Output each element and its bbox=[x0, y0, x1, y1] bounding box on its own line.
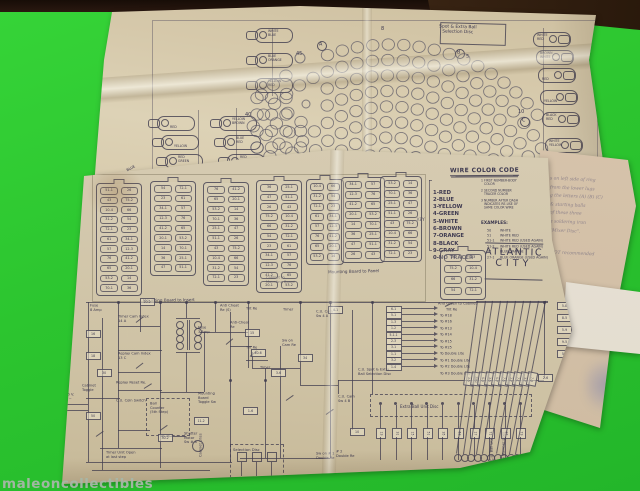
seller-watermark: maleoncollectibles bbox=[2, 476, 153, 491]
schematic-wire bbox=[442, 405, 443, 428]
ladder-source-code: 1-3 bbox=[392, 321, 397, 324]
component-label-text: Timer Cam Index 14 A bbox=[118, 315, 149, 323]
component-label-text: Anti-Cheat Re bbox=[230, 321, 249, 329]
terminal-pill: 75-2 bbox=[444, 265, 462, 273]
wire-tag-code: 15 bbox=[250, 331, 254, 335]
schematic-wire bbox=[544, 302, 545, 378]
component-label-text: Timer bbox=[283, 308, 293, 312]
power-plug-icon bbox=[48, 398, 57, 416]
component-label: Ball Counter (5th Step) bbox=[150, 402, 190, 430]
component-label-text: Sw on Cam Re bbox=[282, 339, 296, 347]
wire-tag-code: 16 bbox=[91, 332, 95, 336]
wire-tag: 15 bbox=[245, 329, 260, 337]
component-label-text: Timer bbox=[260, 366, 270, 370]
terminal-pill: 10-4 bbox=[465, 265, 483, 273]
lower-sheet-wrap: WIRE COLOR CODE ATLANTIC CITY Mounting B… bbox=[0, 0, 640, 491]
schematic-wire bbox=[429, 250, 432, 251]
wire-tag-code: 30 bbox=[102, 371, 106, 375]
schematic-wire bbox=[402, 353, 434, 354]
terminal-pill: 26 bbox=[444, 254, 462, 262]
terminal-pill: 43 bbox=[465, 254, 483, 262]
wire-tag: 11-2 bbox=[194, 417, 209, 425]
wire-tag: 18 bbox=[86, 352, 101, 360]
wire-tag: 1-6 bbox=[243, 407, 258, 415]
wire-tag: 8-5 bbox=[557, 314, 572, 322]
component-label-text: Mounting Board Toggle Sw bbox=[198, 392, 216, 404]
schematic-wire bbox=[402, 346, 434, 347]
wire-code-note-text: 2 SECOND NUMBER TRACER COLOR bbox=[481, 189, 512, 196]
schematic-wire bbox=[402, 340, 434, 341]
junction-dot bbox=[185, 301, 188, 304]
component-label-text: Replay Cam Index 13 C bbox=[118, 352, 151, 360]
ladder-source-code: 5-1-1 bbox=[390, 333, 398, 336]
extra-ball-wire-code: 51 bbox=[426, 432, 429, 436]
wire-tag-code: 5-9 bbox=[562, 328, 567, 332]
schematic-wire bbox=[380, 405, 381, 428]
schematic-wire bbox=[88, 302, 89, 462]
schematic-wire bbox=[402, 366, 434, 367]
component-label: Fuse 3 Amp bbox=[198, 326, 224, 345]
component-label-text: Fuse 8 Amp bbox=[90, 304, 102, 312]
wire-tag-code: 18 bbox=[91, 354, 95, 358]
terminal-pill: 54 bbox=[444, 287, 462, 295]
component-label-text: Fuse 3 Amp bbox=[198, 326, 210, 334]
schematic-wire bbox=[402, 308, 434, 309]
wire-tag: 30-2 bbox=[158, 434, 173, 442]
junction-dot bbox=[117, 301, 120, 304]
wire-tag-code: 8-5 bbox=[562, 316, 567, 320]
component-label: 115 V. 60 ~ bbox=[63, 393, 88, 412]
component-label: Replay Cam Index 13 C bbox=[118, 352, 190, 371]
schematic-wire bbox=[396, 405, 397, 428]
wire-arrowhead bbox=[434, 364, 438, 368]
photo-of-schematic: Spot & Extra Ball Selection Disc Extra W… bbox=[0, 0, 640, 491]
component-label-text: C.U. Cam Sw 4 B bbox=[338, 395, 355, 403]
terminal-pill-code: 10-4 bbox=[469, 267, 477, 271]
schematic-wire bbox=[187, 320, 188, 350]
wire-tag: 40-6 bbox=[251, 349, 266, 357]
example-desc-text: BLUE ORANGE (USED AGAIN) bbox=[500, 256, 548, 260]
bundle-wire-code: 7-3 bbox=[530, 376, 534, 381]
ladder-source-tag: 1-4 bbox=[386, 364, 402, 371]
schematic-wire bbox=[402, 334, 434, 335]
junction-dot bbox=[229, 379, 232, 382]
wire-arrowhead bbox=[434, 344, 438, 348]
component-label-text: Cabinet Toggle bbox=[82, 384, 96, 392]
wiring-schematic-sheet: WIRE COLOR CODE ATLANTIC CITY Mounting B… bbox=[0, 0, 640, 491]
schematic-wire bbox=[189, 320, 190, 350]
component-label-text: Cabinet Lites bbox=[199, 433, 203, 457]
ladder-source-code: 5-1 bbox=[392, 314, 397, 317]
terminal-pill-code: 54 bbox=[451, 289, 455, 293]
component-label-text: 115 V. 60 ~ bbox=[63, 393, 74, 401]
wire-tag-code: 5-8 bbox=[562, 304, 567, 308]
schematic-wire bbox=[86, 302, 548, 303]
wire-arrowhead bbox=[434, 351, 438, 355]
wire-tag: 30 bbox=[97, 369, 112, 377]
ladder-source-code: 1-2 bbox=[392, 327, 397, 330]
extra-ball-wire-tag: 31 bbox=[392, 428, 402, 439]
wire-tag: 9-5 bbox=[557, 338, 572, 346]
junction-dot bbox=[214, 301, 217, 304]
schematic-wire bbox=[429, 180, 432, 181]
extra-ball-wire-code: 17 bbox=[473, 432, 476, 436]
wire-tag: 3-6 bbox=[271, 369, 286, 377]
component-label: Replay Reset Re. bbox=[116, 372, 183, 391]
component-label: C.U. Spot & Extra Ball Selection Disc bbox=[358, 368, 432, 387]
schematic-wire bbox=[402, 321, 434, 322]
schematic-wire bbox=[402, 327, 434, 328]
example-code-text: 27-1 bbox=[487, 256, 494, 260]
wire-tag: 5-8 bbox=[557, 302, 572, 310]
ladder-source-code: 1-1 bbox=[392, 353, 397, 356]
wire-tag-code: 30-2 bbox=[162, 436, 169, 440]
stain-top-left bbox=[80, 172, 150, 212]
wire-arrowhead bbox=[434, 306, 438, 310]
extra-ball-unit-caption-text: Extra Ball Unit Disc bbox=[400, 405, 438, 409]
wire-arrowhead bbox=[434, 357, 438, 361]
junction-dot bbox=[371, 301, 374, 304]
component-label-text: Anti Cheat Re (S) bbox=[220, 304, 239, 312]
component-label-text: Ball Counter (5th Step) bbox=[150, 402, 168, 414]
wire-code-note-text: 1 FIRST NUMBER-BODY COLOR bbox=[481, 179, 517, 186]
wire-tag-code: 1-6 bbox=[248, 409, 253, 413]
component-label: Tilt Re bbox=[246, 298, 271, 317]
schematic-wire bbox=[66, 344, 67, 404]
wire-arrowhead bbox=[434, 319, 438, 323]
terminal-pill: 66 bbox=[444, 276, 462, 284]
schematic-wire bbox=[427, 405, 428, 428]
extra-ball-wire-code: 13 bbox=[379, 432, 382, 436]
wire-tag: 34 bbox=[298, 354, 313, 362]
component-label-text: Tilt Re bbox=[246, 307, 257, 311]
ladder-source-code: 1-4 bbox=[392, 365, 397, 368]
wire-tag-code: 50 bbox=[91, 414, 95, 418]
switch-contact-tick bbox=[286, 395, 294, 401]
schematic-wire bbox=[402, 359, 434, 360]
schematic-wire bbox=[100, 448, 162, 449]
lower-sheet-content: WIRE COLOR CODE ATLANTIC CITY Mounting B… bbox=[0, 0, 640, 491]
wire-arrowhead bbox=[434, 338, 438, 342]
wire-tag-code: 2-6 bbox=[543, 376, 548, 380]
schematic-wire bbox=[411, 405, 412, 428]
wire-tag-code: 34 bbox=[303, 356, 307, 360]
extra-ball-wire-tag: 13 bbox=[376, 428, 386, 439]
terminal-pill: 72-1 bbox=[465, 287, 483, 295]
transformer-coil-loop bbox=[176, 342, 184, 350]
schematic-wire bbox=[402, 314, 434, 315]
bundle-wire-tag: 7-3 bbox=[526, 371, 539, 387]
terminal-pill-code: 26 bbox=[451, 256, 455, 260]
extra-ball-wire-tag: 15 bbox=[407, 428, 417, 439]
terminal-pill-code: 75-2 bbox=[449, 267, 457, 271]
component-label: Mounting Board Toggle Sw bbox=[198, 392, 238, 420]
wire-color-code-title: WIRE COLOR CODE bbox=[450, 167, 519, 177]
wire-tag-code: 11-2 bbox=[198, 419, 205, 423]
terminal-pill-code: 31-2 bbox=[469, 278, 477, 282]
wire-tag: 50 bbox=[86, 412, 101, 420]
wire-arrowhead bbox=[434, 312, 438, 316]
component-label-text: C.U. Coin Switch bbox=[116, 399, 146, 403]
component-label: Timer bbox=[283, 299, 306, 318]
wire-tag: 5-9 bbox=[557, 326, 572, 334]
terminal-pill-code: 43 bbox=[471, 256, 475, 260]
wire-tag: 2-6 bbox=[538, 374, 553, 382]
junction-dot bbox=[264, 379, 267, 382]
wire-tag: 5-0 bbox=[557, 350, 572, 358]
wire-tag-code: 40-6 bbox=[255, 351, 262, 355]
wire-tag: 16 bbox=[86, 330, 101, 338]
component-label-text: Replay Reset Re. bbox=[116, 381, 146, 385]
ladder-source-code: 3-1 bbox=[392, 346, 397, 349]
wire-tag-code: 5-0 bbox=[562, 352, 567, 356]
wire-tag: 20-2 bbox=[140, 298, 155, 306]
component-label: Fuse 8 Amp bbox=[90, 304, 116, 323]
terminal-strip: 264375-210-46631-25472-1 bbox=[440, 250, 486, 300]
extra-ball-wire-code: 35 bbox=[442, 432, 445, 436]
extra-ball-wire-tag: 35 bbox=[438, 428, 448, 439]
terminal-pill: 31-2 bbox=[465, 276, 483, 284]
wire-tag-code: 20-2 bbox=[144, 300, 151, 304]
extra-ball-wire-tag: 51 bbox=[423, 428, 433, 439]
component-label-text: Shutter Motor Sw # 8 bbox=[184, 432, 197, 444]
ladder-source-code: 2-3 bbox=[392, 340, 397, 343]
wire-tag-code: 10 bbox=[355, 430, 359, 434]
title-rule-bottom bbox=[484, 278, 542, 281]
wire-code-note-text: 3 NUMBER AFTER DASH INDICATES RE-USE OF … bbox=[481, 199, 518, 209]
junction-dot bbox=[159, 301, 162, 304]
terminal-pill-code: 66 bbox=[451, 278, 455, 282]
ladder-source-code: 6-1 bbox=[392, 308, 397, 311]
extra-ball-wire-code: 31 bbox=[395, 432, 398, 436]
wire-tag: 10 bbox=[350, 428, 365, 436]
component-label: Timer Cam Index 14 A bbox=[118, 315, 186, 334]
wire-arrowhead bbox=[434, 332, 438, 336]
terminal-pill-code: 72-1 bbox=[469, 289, 477, 293]
wire-tag-code: 9-5 bbox=[562, 340, 567, 344]
ladder-source-code: 3-2 bbox=[392, 359, 397, 362]
wire-arrowhead bbox=[434, 325, 438, 329]
extra-ball-wire-code: 15 bbox=[410, 432, 413, 436]
wire-tag-code: 3-6 bbox=[276, 371, 281, 375]
example-desc: BLUE ORANGE (USED AGAIN) bbox=[500, 247, 616, 266]
schematic-wire bbox=[458, 405, 459, 428]
